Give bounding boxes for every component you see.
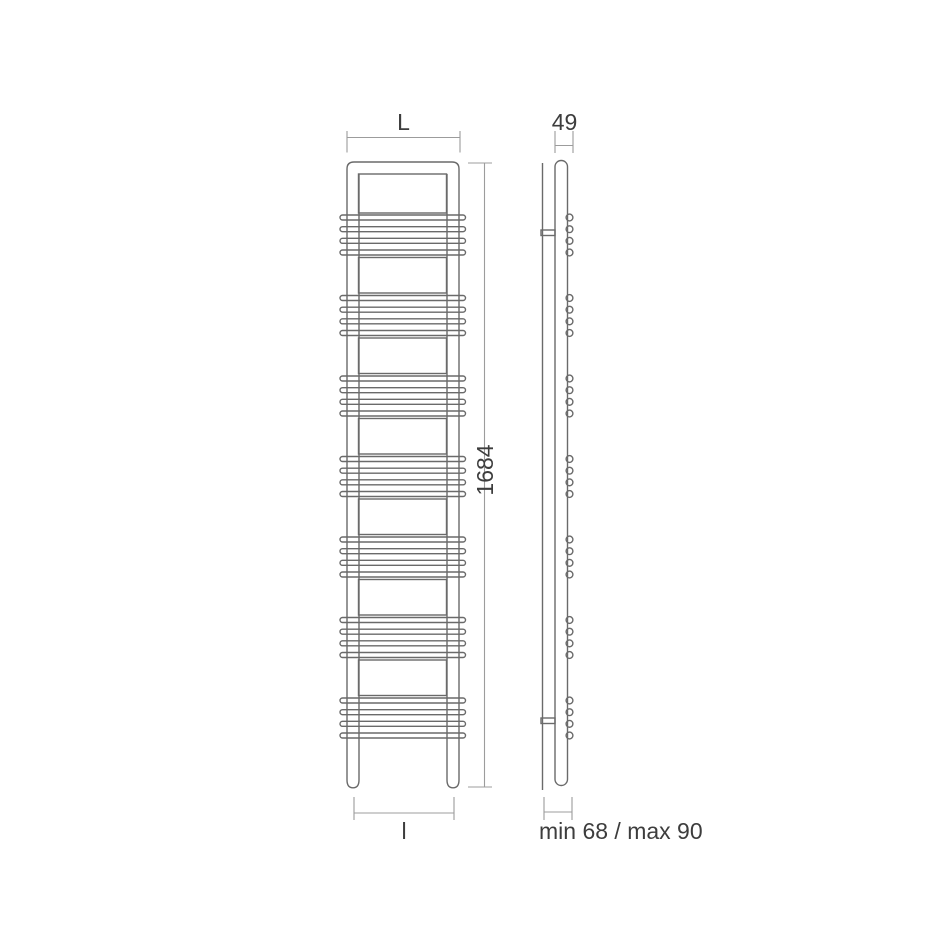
width-dimension-label: L	[397, 109, 410, 135]
right-leg-cap	[447, 780, 459, 788]
pipe-centres-dimension-label: l	[401, 818, 406, 844]
width-dimension: L	[347, 109, 460, 153]
panel-section	[359, 338, 447, 374]
panel-section	[359, 580, 447, 616]
depth-dimension-label: 49	[552, 109, 578, 135]
front-view: L 1684 l	[340, 109, 498, 844]
panel-section	[359, 660, 447, 696]
technical-drawing: L 1684 l 49	[0, 0, 950, 950]
depth-dimension: 49	[552, 109, 578, 153]
left-leg-cap	[347, 780, 359, 788]
panel-section	[359, 419, 447, 455]
radiator-frame	[347, 162, 459, 788]
pipe-centres-dimension: l	[354, 797, 454, 844]
wall-distance-dimension: min 68 / max 90	[539, 797, 703, 844]
wall-distance-dimension-label: min 68 / max 90	[539, 818, 703, 844]
panel-section	[359, 258, 447, 294]
height-dimension: 1684	[468, 163, 498, 787]
height-dimension-label: 1684	[472, 444, 498, 495]
panel-section	[359, 499, 447, 535]
side-view: 49 min 68 / max 90	[539, 109, 703, 844]
side-profile-tube	[555, 161, 568, 786]
panel-section	[359, 174, 447, 213]
